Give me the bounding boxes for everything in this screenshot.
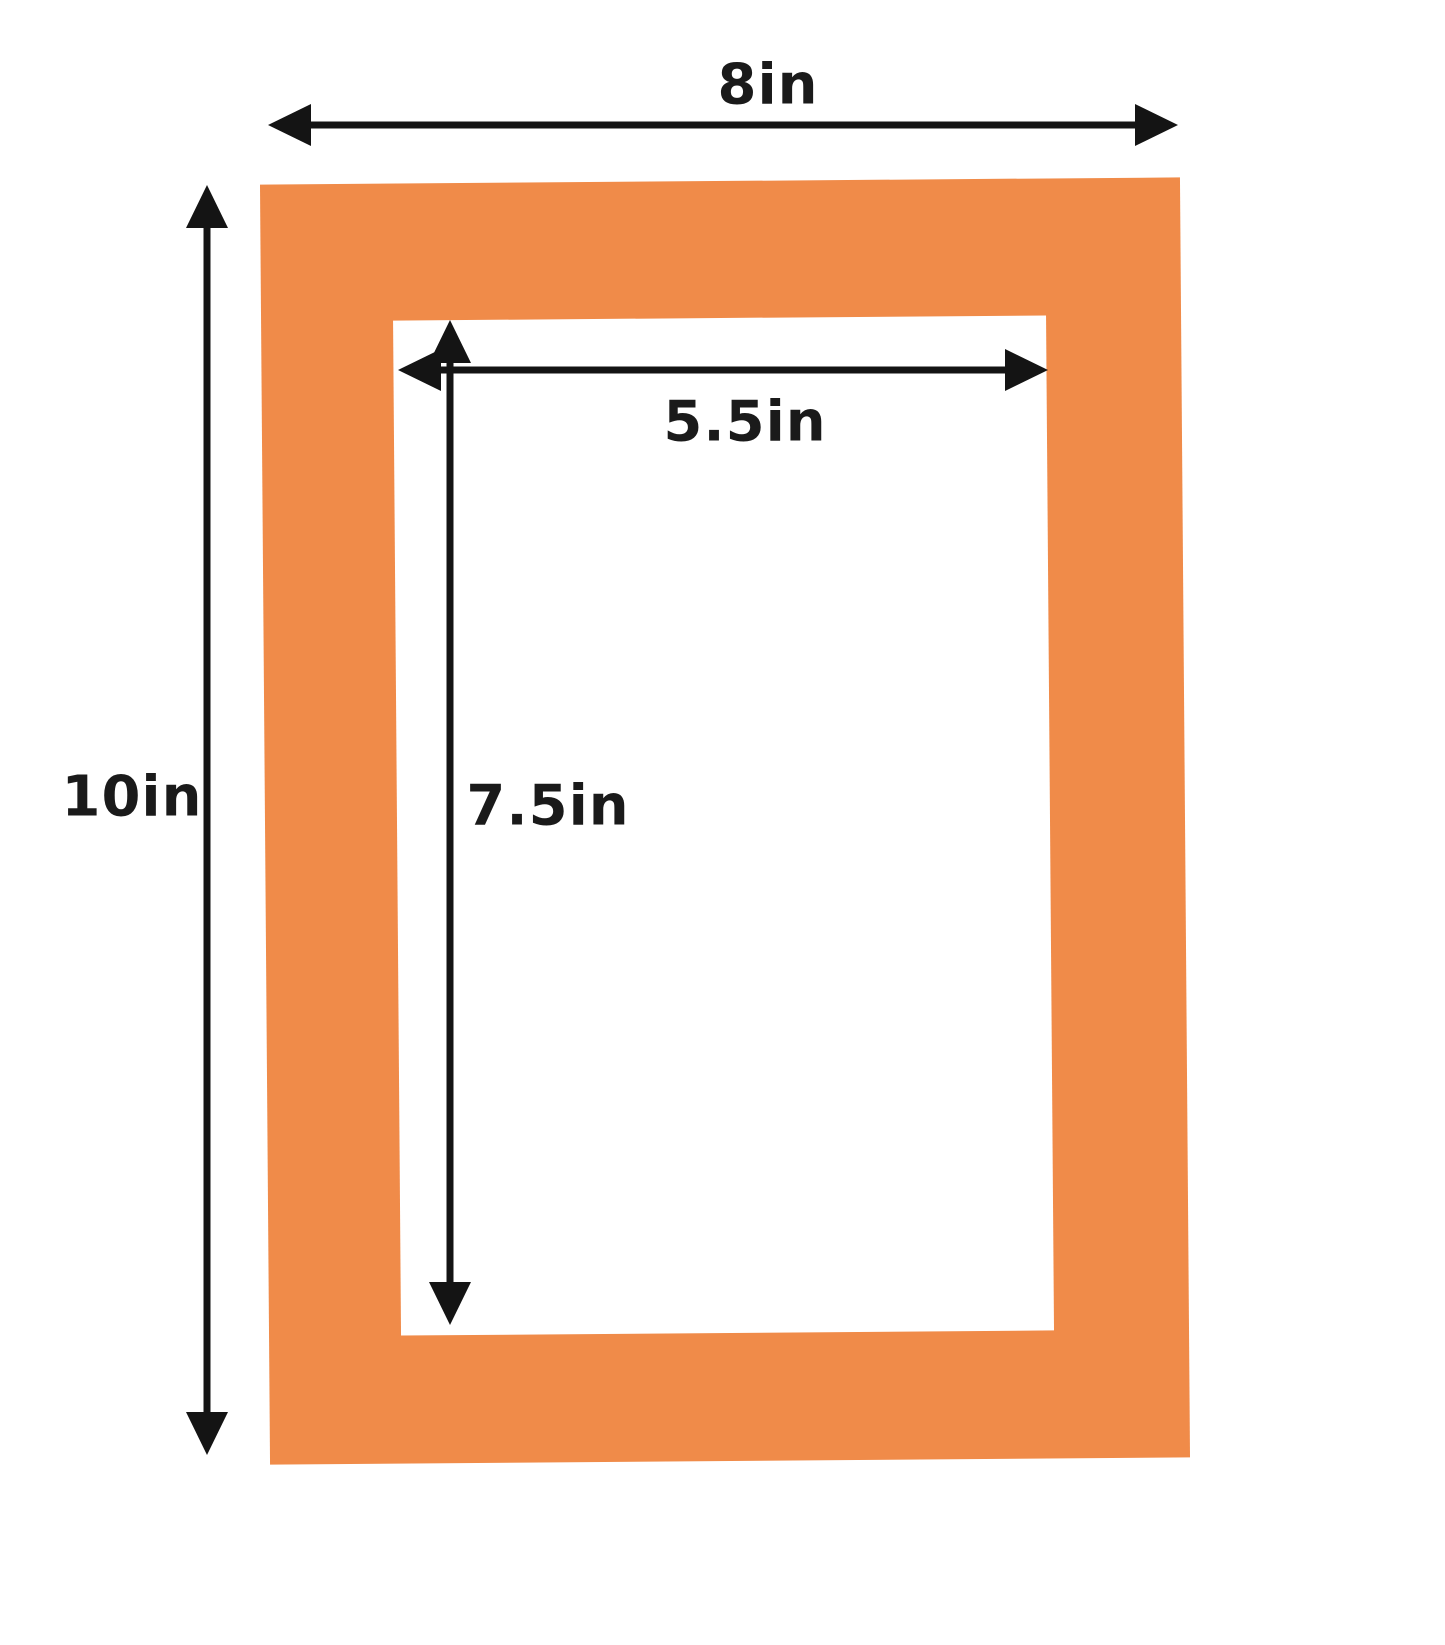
- arrowhead-right-icon: [1135, 104, 1178, 146]
- arrowhead-down-icon: [186, 1412, 228, 1455]
- arrowhead-up-icon: [186, 185, 228, 228]
- outer-height-label: 10in: [62, 765, 203, 830]
- mat-dimension-diagram: 8in 10in 5.5in 7.5in: [0, 0, 1445, 1645]
- arrowhead-left-icon: [268, 104, 311, 146]
- opening-height-label: 7.5in: [466, 774, 629, 839]
- outer-width-label: 8in: [717, 53, 818, 118]
- diagram-graphics: [0, 0, 1445, 1645]
- opening-width-label: 5.5in: [663, 390, 826, 455]
